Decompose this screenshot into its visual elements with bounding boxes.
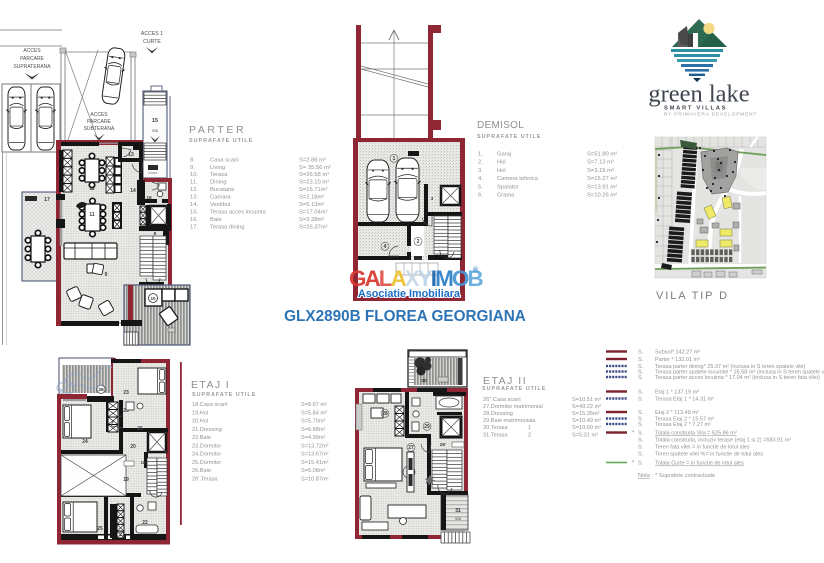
svg-text:Terasa dining: Terasa dining: [210, 224, 244, 230]
svg-text:20: 20: [130, 444, 136, 450]
svg-text:S=7.13 m²: S=7.13 m²: [587, 160, 614, 166]
svg-text:928: 928: [152, 129, 158, 133]
svg-text:18: 18: [140, 460, 146, 465]
svg-text:BY PRIMAVERA DEVELOPMENT: BY PRIMAVERA DEVELOPMENT: [664, 112, 757, 118]
svg-text:S=8.67 m²: S=8.67 m²: [301, 402, 327, 408]
svg-text:®: ®: [473, 266, 479, 274]
svg-text:21: 21: [119, 532, 125, 538]
svg-text:S=5.13m²: S=5.13m²: [299, 202, 324, 208]
svg-text:ACCES 1: ACCES 1: [141, 31, 163, 37]
svg-text:19: 19: [123, 477, 129, 483]
svg-text:15: 15: [152, 118, 158, 124]
svg-text:PARCARE: PARCARE: [87, 119, 111, 125]
svg-text:S=13.67m²: S=13.67m²: [301, 452, 329, 458]
svg-text:S=15.35m²: S=15.35m²: [572, 411, 600, 417]
svg-text:23.Dormitor: 23.Dormitor: [192, 443, 221, 449]
svg-text:11: 11: [89, 212, 95, 218]
svg-text:SUPRAFATE UTILE: SUPRAFATE UTILE: [482, 386, 546, 392]
svg-text:26.Baie: 26.Baie: [192, 468, 211, 474]
svg-text:12: 12: [89, 186, 95, 192]
svg-text:30: 30: [421, 378, 427, 384]
svg-text:26: 26: [137, 426, 143, 432]
svg-text:S=13.91 m²: S=13.91 m²: [587, 184, 617, 190]
svg-text:26'.Terasa: 26'.Terasa: [192, 476, 219, 482]
svg-text:S=3.19 m²: S=3.19 m²: [587, 168, 614, 174]
svg-text:3.: 3.: [478, 168, 483, 174]
svg-text:CURTE: CURTE: [143, 39, 161, 45]
svg-text:Terasa: Terasa: [210, 172, 228, 178]
svg-text:Vestibul: Vestibul: [210, 202, 230, 208]
svg-text:PARTER: PARTER: [189, 124, 246, 136]
svg-text:31: 31: [455, 508, 461, 514]
svg-text:S.: S.: [638, 375, 644, 381]
svg-text:S=49.22 m²: S=49.22 m²: [572, 404, 601, 410]
svg-text:S=3.28m²: S=3.28m²: [299, 217, 324, 223]
svg-text:23: 23: [123, 390, 129, 396]
svg-text:4.: 4.: [478, 176, 483, 182]
svg-text:S=15.71m²: S=15.71m²: [299, 187, 328, 193]
svg-text:16: 16: [146, 195, 152, 201]
svg-text:1.: 1.: [478, 151, 483, 157]
svg-text:25.Dormitor: 25.Dormitor: [192, 460, 221, 466]
svg-text:Nota: Nota: [638, 473, 651, 479]
svg-text:Asociatie Imobiliara: Asociatie Imobiliara: [358, 288, 461, 300]
svg-text:S=51.80 m²: S=51.80 m²: [587, 151, 617, 157]
svg-text:S=17.04m²: S=17.04m²: [299, 209, 328, 215]
svg-text:S=10.26 m²: S=10.26 m²: [587, 193, 617, 199]
svg-text:Hol: Hol: [497, 168, 506, 174]
svg-text:S.: S.: [638, 445, 644, 451]
svg-text:S.: S.: [638, 350, 644, 356]
svg-text:S.: S.: [638, 452, 644, 458]
svg-text:19.Hol: 19.Hol: [192, 410, 208, 416]
svg-text:27: 27: [408, 445, 414, 451]
svg-text:S.: S.: [638, 357, 644, 363]
svg-text:15.: 15.: [190, 209, 198, 215]
svg-text:Camera tehnica: Camera tehnica: [497, 176, 539, 182]
svg-text:Terasa acces locuinta: Terasa acces locuinta: [210, 209, 267, 215]
svg-text:30.Terasa: 30.Terasa: [483, 425, 508, 431]
svg-text:GLX2890B FLOREA GEORGIANA: GLX2890B FLOREA GEORGIANA: [284, 308, 526, 325]
svg-text:S.: S.: [638, 431, 644, 437]
svg-text:Baie: Baie: [210, 217, 222, 223]
svg-text:S.: S.: [638, 390, 644, 396]
svg-text:VILA TIP D: VILA TIP D: [656, 290, 729, 302]
svg-text:Etaj 2 * 113.49 m²: Etaj 2 * 113.49 m²: [655, 410, 699, 416]
svg-text:S=25.37m²: S=25.37m²: [299, 224, 328, 230]
svg-text:Spalator: Spalator: [497, 184, 519, 190]
svg-text:28.Dressing: 28.Dressing: [483, 411, 513, 417]
svg-text:S=23.10 m²: S=23.10 m²: [299, 180, 329, 186]
svg-text:12.: 12.: [190, 187, 198, 193]
svg-text:16.: 16.: [190, 217, 198, 223]
svg-text:14: 14: [130, 188, 136, 194]
svg-text:26': 26': [440, 442, 446, 448]
svg-text:Hol: Hol: [497, 160, 506, 166]
svg-text:Living: Living: [210, 165, 225, 171]
svg-text:Dining: Dining: [210, 180, 226, 186]
svg-text:S=2.18m²: S=2.18m²: [299, 195, 324, 201]
svg-text:3: 3: [431, 196, 434, 202]
svg-text:S=10.49 m²: S=10.49 m²: [572, 418, 601, 424]
svg-text:22.Baie: 22.Baie: [192, 435, 211, 441]
svg-text:ETAJ I: ETAJ I: [191, 379, 230, 391]
svg-text:PARCARE: PARCARE: [20, 56, 44, 62]
svg-text:SUPRAFATE UTILE: SUPRAFATE UTILE: [189, 138, 253, 144]
svg-text:Teren fata vilei = in functie: Teren fata vilei = in functie de lotul a…: [655, 445, 750, 451]
svg-text:S=10.87m²: S=10.87m²: [301, 476, 329, 482]
svg-text:10: 10: [150, 296, 156, 301]
svg-text:8.: 8.: [190, 157, 195, 163]
svg-text:Totala Curte = in functie de l: Totala Curte = in functie de lotul ales: [655, 461, 744, 467]
svg-text:DEMISOL: DEMISOL: [477, 120, 524, 131]
svg-text:S=5.08m²: S=5.08m²: [301, 468, 326, 474]
svg-text:S.: S.: [638, 422, 644, 428]
svg-text:Terasa parter acces locuinta *: Terasa parter acces locuinta * 17.04 m² …: [655, 375, 820, 381]
svg-text:Totala construita, incluziv te: Totala construita, incluziv terase (etaj…: [655, 438, 791, 444]
svg-text:26: 26: [98, 387, 104, 393]
svg-text:S=10.51 m²: S=10.51 m²: [572, 397, 601, 403]
svg-text:SUPRATERANA: SUPRATERANA: [13, 64, 51, 70]
svg-text:4: 4: [384, 244, 387, 250]
svg-text:20.Hol: 20.Hol: [192, 419, 208, 425]
svg-text:SUPRAFATE UTILE: SUPRAFATE UTILE: [192, 392, 256, 398]
svg-text:SUPRAFATE UTILE: SUPRAFATE UTILE: [477, 134, 541, 140]
svg-text:S.: S.: [638, 397, 644, 403]
svg-text:2: 2: [528, 432, 531, 438]
svg-text:24.Dormitor: 24.Dormitor: [192, 452, 221, 458]
svg-text:24: 24: [82, 439, 88, 445]
svg-text:S.: S.: [638, 461, 644, 467]
svg-text:Terasa Etaj 2 * 7.27 m²: Terasa Etaj 2 * 7.27 m²: [655, 422, 711, 428]
svg-text:S=15.27 m²: S=15.27 m²: [587, 176, 617, 182]
svg-text:1: 1: [393, 156, 396, 162]
svg-text:6.: 6.: [478, 193, 483, 199]
svg-text:21.Dressing: 21.Dressing: [192, 427, 222, 433]
svg-text:S=5.84 m²: S=5.84 m²: [301, 410, 327, 416]
svg-text:S.: S.: [638, 438, 644, 444]
svg-text:Crama: Crama: [497, 193, 515, 199]
svg-text:ACCES: ACCES: [90, 112, 108, 118]
svg-text:: * Suprafete contractuale: : * Suprafete contractuale: [652, 473, 715, 479]
svg-text:Bucatarie: Bucatarie: [210, 187, 235, 193]
svg-text:27.Dormitor matrimonial: 27.Dormitor matrimonial: [483, 404, 543, 410]
svg-text:Parter * 132.01 m²: Parter * 132.01 m²: [655, 357, 700, 363]
svg-text:Camara: Camara: [210, 195, 231, 201]
svg-text:SUBTERANA: SUBTERANA: [84, 126, 115, 132]
svg-text:31.Terasa: 31.Terasa: [483, 432, 508, 438]
svg-text:11.: 11.: [190, 180, 198, 186]
svg-text:S=13.72m²: S=13.72m²: [301, 443, 329, 449]
svg-text:SMART VILLAS: SMART VILLAS: [664, 106, 727, 112]
svg-text:5.: 5.: [478, 184, 483, 190]
svg-text:18.Casa scarii: 18.Casa scarii: [192, 402, 227, 408]
svg-text:26''.Casa scarii: 26''.Casa scarii: [483, 397, 521, 403]
svg-text:17: 17: [44, 197, 50, 203]
svg-text:13.: 13.: [190, 195, 198, 201]
svg-text:9.: 9.: [190, 165, 195, 171]
svg-text:29.Baie matrimoniala: 29.Baie matrimoniala: [483, 418, 536, 424]
svg-text:928: 928: [455, 517, 461, 521]
svg-text:ACCES: ACCES: [23, 48, 41, 54]
svg-text:10.: 10.: [190, 172, 198, 178]
svg-text:22: 22: [142, 520, 148, 526]
svg-text:14.: 14.: [190, 202, 198, 208]
svg-text:S=26.58 m²: S=26.58 m²: [299, 172, 329, 178]
svg-text:intrare: intrare: [148, 171, 157, 175]
svg-text:green lake: green lake: [648, 81, 749, 108]
svg-text:2.: 2.: [478, 160, 483, 166]
svg-text:2: 2: [417, 239, 420, 245]
svg-text:29: 29: [424, 424, 430, 430]
svg-text:S=2.88 m²: S=2.88 m²: [299, 157, 326, 163]
svg-text:S=4.99m²: S=4.99m²: [301, 435, 326, 441]
svg-text:13: 13: [128, 152, 134, 158]
svg-text:Teren spatele vilei %= in fun: Teren spatele vilei %= in functie de lot…: [655, 452, 763, 458]
svg-text:Totala construita Vila = 525.8: Totala construita Vila = 525.86 m²: [655, 431, 737, 437]
svg-text:S=5.70m²: S=5.70m²: [301, 419, 326, 425]
svg-text:Garaj: Garaj: [497, 151, 511, 157]
svg-text:17.: 17.: [190, 224, 198, 230]
svg-text:S.: S.: [638, 410, 644, 416]
svg-text:S=10.60 m²: S=10.60 m²: [572, 425, 601, 431]
svg-text:28: 28: [382, 411, 388, 417]
svg-text:S=15.41m²: S=15.41m²: [301, 460, 329, 466]
svg-text:1: 1: [528, 425, 531, 431]
svg-text:Subsol* 142.27 m²: Subsol* 142.27 m²: [655, 350, 700, 356]
svg-text:25: 25: [97, 526, 103, 532]
svg-text:S=5.31 m²: S=5.31 m²: [572, 432, 598, 438]
svg-text:9: 9: [105, 272, 108, 278]
svg-text:Etaj 1 * 137.19 m²: Etaj 1 * 137.19 m²: [655, 390, 699, 396]
svg-text:S= 35.56 m²: S= 35.56 m²: [299, 165, 331, 171]
svg-text:Terasa Etaj 1 * 14.31 m²: Terasa Etaj 1 * 14.31 m²: [655, 397, 714, 403]
svg-text:S=6.88m²: S=6.88m²: [301, 427, 326, 433]
svg-text:Casa scarii: Casa scarii: [210, 157, 239, 163]
